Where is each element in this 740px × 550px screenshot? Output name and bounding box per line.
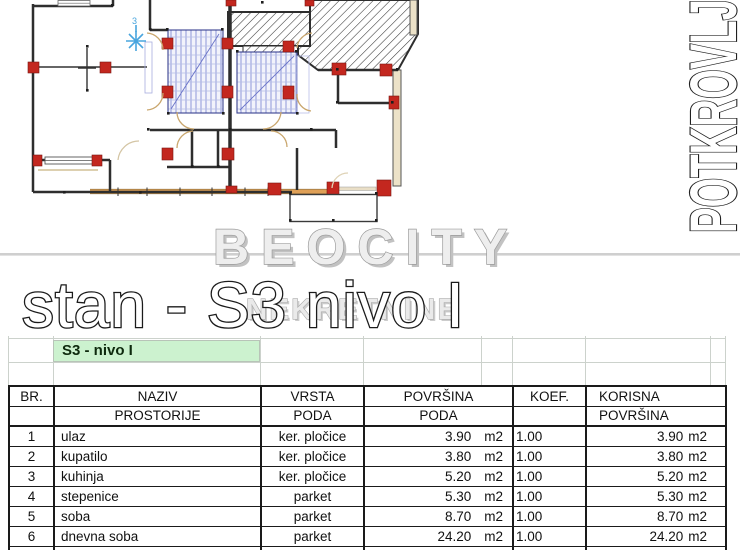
dimension-line (33, 48, 147, 90)
room-name-cell: soba (54, 506, 261, 526)
floor-area-cell: 3.80m2 (364, 446, 513, 466)
row-number-cell: 7 (9, 546, 54, 550)
area-value: 8.70 (445, 509, 471, 524)
floor-area-cell: 8.70m2 (364, 506, 513, 526)
col-header-koef-2 (513, 406, 586, 426)
table-row: 7terasaker. pločice4.60m21.004.60m2 (9, 546, 726, 550)
row-number-cell: 4 (9, 486, 54, 506)
room-name-cell: kupatilo (54, 446, 261, 466)
usable-area-cell: 24.20m2 (586, 526, 726, 546)
col-header-koef: KOEF. (513, 386, 586, 406)
area-value: 5.20 (445, 469, 471, 484)
area-unit: m2 (484, 489, 503, 504)
area-unit: m2 (688, 449, 707, 464)
area-unit: m2 (484, 509, 503, 524)
floor-area-cell: 24.20m2 (364, 526, 513, 546)
area-unit: m2 (688, 529, 707, 544)
floor-type-cell: ker. pločice (261, 426, 364, 446)
area-unit: m2 (688, 469, 707, 484)
col-header-br-2 (9, 406, 54, 426)
coefficient-cell: 1.00 (513, 446, 586, 466)
coefficient-cell: 1.00 (513, 426, 586, 446)
row-number-cell: 6 (9, 526, 54, 546)
floor-area-cell: 4.60m2 (364, 546, 513, 550)
floor-type-cell: ker. pločice (261, 466, 364, 486)
floor-area-cell: 5.20m2 (364, 466, 513, 486)
room-name-cell: dnevna soba (54, 526, 261, 546)
table-row: 4stepeniceparket5.30m21.005.30m2 (9, 486, 726, 506)
coefficient-cell: 1.00 (513, 466, 586, 486)
usable-area-cell: 8.70m2 (586, 506, 726, 526)
coefficient-cell: 1.00 (513, 526, 586, 546)
area-value: 24.20 (649, 529, 683, 544)
table-row: 1ulazker. pločice3.90m21.003.90m2 (9, 426, 726, 446)
area-unit: m2 (688, 429, 707, 444)
watermark-text: BEOCITY (213, 219, 519, 275)
col-header-vrsta-2: PODA (261, 406, 364, 426)
balcony (290, 195, 377, 222)
area-value: 5.20 (657, 469, 683, 484)
floor-plan: 3 (28, 0, 418, 222)
coefficient-cell: 1.00 (513, 506, 586, 526)
area-value: 3.80 (657, 449, 683, 464)
area-unit: m2 (688, 509, 707, 524)
usable-area-cell: 3.90m2 (586, 426, 726, 446)
table-row: 6dnevna sobaparket24.20m21.0024.20m2 (9, 526, 726, 546)
room-name-cell: stepenice (54, 486, 261, 506)
floor-type-cell: parket (261, 486, 364, 506)
area-value: 5.30 (657, 489, 683, 504)
room-name-cell: terasa (54, 546, 261, 550)
coefficient-cell: 1.00 (513, 486, 586, 506)
area-unit: m2 (688, 489, 707, 504)
area-unit: m2 (484, 429, 503, 444)
room-area-table: BR. NAZIV VRSTA POVRŠINA KOEF. KORISNA P… (8, 385, 727, 550)
area-unit: m2 (484, 449, 503, 464)
col-header-korisna: KORISNA (586, 386, 726, 406)
table-header: BR. NAZIV VRSTA POVRŠINA KOEF. KORISNA P… (9, 386, 726, 426)
floor-area-cell: 5.30m2 (364, 486, 513, 506)
row-number-cell: 1 (9, 426, 54, 446)
row-number-cell: 2 (9, 446, 54, 466)
table-row: 5sobaparket8.70m21.008.70m2 (9, 506, 726, 526)
row-number-cell: 5 (9, 506, 54, 526)
floor-type-cell: parket (261, 526, 364, 546)
page-title: stan - S3 nivo I (22, 269, 465, 341)
area-value: 8.70 (657, 509, 683, 524)
area-value: 3.80 (445, 449, 471, 464)
table-row: 3kuhinjaker. pločice5.20m21.005.20m2 (9, 466, 726, 486)
usable-area-cell: 4.60m2 (586, 546, 726, 550)
table-row: 2kupatiloker. pločice3.80m21.003.80m2 (9, 446, 726, 466)
room-name-cell: kuhinja (54, 466, 261, 486)
level-label-vertical: POTKROVLJ (677, 0, 740, 233)
usable-area-cell: 3.80m2 (586, 446, 726, 466)
area-value: 24.20 (437, 529, 471, 544)
col-header-povrsina: POVRŠINA (364, 386, 513, 406)
floor-area-cell: 3.90m2 (364, 426, 513, 446)
area-value: 3.90 (657, 429, 683, 444)
axis-number: 3 (132, 16, 137, 26)
floor-type-cell: ker. pločice (261, 546, 364, 550)
section-label-cell: S3 - nivo I (53, 340, 260, 362)
col-header-naziv: NAZIV (54, 386, 261, 406)
area-unit: m2 (484, 529, 503, 544)
usable-area-cell: 5.30m2 (586, 486, 726, 506)
coefficient-cell: 1.00 (513, 546, 586, 550)
floor-type-cell: ker. pločice (261, 446, 364, 466)
row-number-cell: 3 (9, 466, 54, 486)
table-body: 1ulazker. pločice3.90m21.003.90m22kupati… (9, 426, 726, 550)
document-page: 3 BEOCITY BEOCITY NEKRETNINE NEKRETNINE … (0, 0, 740, 550)
col-header-naziv-2: PROSTORIJE (54, 406, 261, 426)
usable-area-cell: 5.20m2 (586, 466, 726, 486)
col-header-korisna-2: POVRŠINA (586, 406, 726, 426)
col-header-vrsta: VRSTA (261, 386, 364, 406)
col-header-br: BR. (9, 386, 54, 406)
window-symbol (45, 1, 97, 165)
axis-star-icon: 3 (126, 16, 146, 51)
area-unit: m2 (484, 469, 503, 484)
area-value: 3.90 (445, 429, 471, 444)
col-header-povrsina-2: PODA (364, 406, 513, 426)
floor-type-cell: parket (261, 506, 364, 526)
area-value: 5.30 (445, 489, 471, 504)
room-name-cell: ulaz (54, 426, 261, 446)
